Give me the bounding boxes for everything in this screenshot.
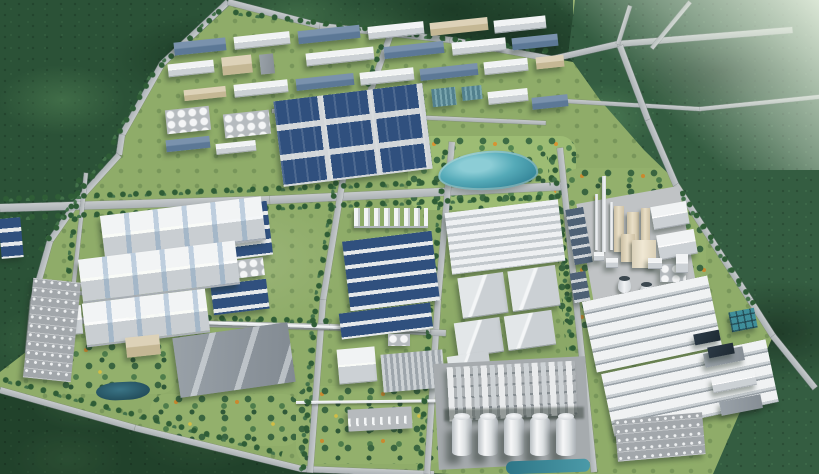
glass-roof-building [461, 85, 482, 101]
storage-silo [530, 416, 550, 456]
plant-building [606, 258, 618, 268]
factory-building [337, 346, 378, 384]
cooling-tower [618, 278, 631, 293]
storage-silo [452, 416, 472, 456]
factory-building [451, 37, 506, 56]
plant-building [648, 258, 662, 269]
factory-building [296, 73, 355, 91]
blue-roof-rows [342, 231, 440, 311]
chimney-stack [602, 176, 606, 252]
factory-building [173, 37, 226, 55]
industrial-park-aerial-render [0, 0, 819, 474]
plant-pond [506, 459, 590, 474]
parking-lot-southeast [614, 412, 705, 462]
storage-tank-cluster [223, 110, 271, 139]
factory-building [367, 21, 424, 40]
factory-building [297, 25, 360, 44]
gray-warehouse [504, 310, 556, 351]
storage-silo [556, 416, 576, 456]
chimney-stack [610, 202, 613, 250]
storage-tank-cluster [165, 106, 211, 134]
factory-building [184, 86, 227, 101]
glass-roof-building [431, 87, 457, 107]
office-building [125, 334, 161, 357]
navy-roof-grid [273, 83, 432, 187]
factory-building [384, 41, 445, 59]
factory-building [233, 31, 290, 50]
truck-dock [347, 406, 412, 431]
storage-tank-pair [388, 334, 410, 346]
factory-building [493, 15, 546, 33]
plant-building [676, 254, 688, 273]
chimney-stack [595, 194, 598, 250]
factory-building [165, 136, 210, 153]
navy-roof-rows [0, 217, 24, 259]
gray-warehouse [457, 272, 508, 319]
factory-building [535, 55, 564, 70]
factory-building [306, 46, 375, 66]
factory-building [483, 58, 528, 76]
factory-building [221, 54, 253, 75]
storage-silo [478, 416, 498, 456]
plant-building [594, 252, 604, 261]
factory-building [359, 67, 414, 86]
factory-building [487, 88, 528, 105]
factory-building [259, 53, 275, 74]
factory-building [216, 140, 257, 155]
process-column-row [354, 208, 428, 228]
factory-building [511, 34, 558, 51]
storage-silo [504, 416, 524, 456]
gray-warehouse [507, 265, 560, 312]
factory-building [233, 79, 288, 98]
factory-building [531, 94, 568, 110]
factory-building [167, 60, 214, 78]
factory-building [420, 63, 479, 81]
factory-building [429, 17, 488, 36]
